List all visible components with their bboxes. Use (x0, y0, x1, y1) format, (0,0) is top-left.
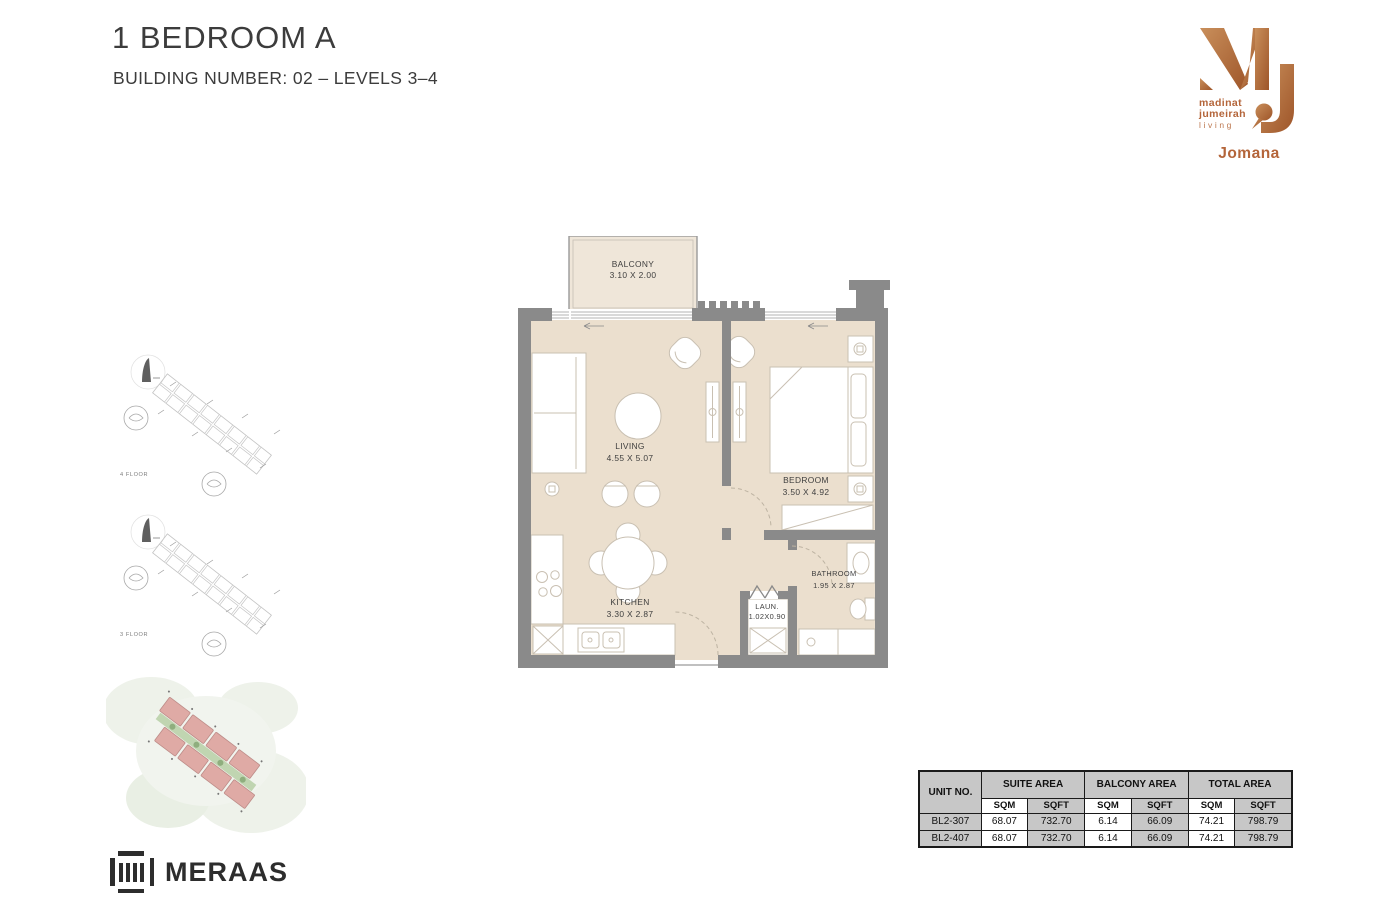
brand-line-living: living (1199, 120, 1246, 131)
table-cell: 74.21 (1188, 813, 1234, 830)
wardrobe (782, 505, 873, 530)
shower (799, 629, 875, 655)
project-name-jomana: Jomana (1197, 145, 1301, 163)
sub-header-sqft: SQFT (1028, 798, 1085, 813)
table-cell: 798.79 (1235, 830, 1292, 847)
compass-icon (124, 406, 226, 496)
sliding-door-panel (733, 382, 746, 442)
room-dims-bedroom: 3.50 X 4.92 (783, 487, 830, 497)
room-label-balcony: BALCONY (612, 259, 655, 269)
keyplan-floor-3: 3 FLOOR (112, 512, 292, 664)
table-cell: 732.70 (1028, 813, 1085, 830)
page-title: 1 BEDROOM A (112, 20, 337, 56)
floor-plan: BALCONY 3.10 X 2.00 LIVING 4.55 X 5.07 B… (518, 236, 890, 668)
meraas-wordmark: MERAAS (165, 857, 288, 888)
table-cell: 6.14 (1085, 830, 1131, 847)
unit-number-cell: BL2-307 (919, 813, 981, 830)
room-label-bedroom: BEDROOM (783, 475, 829, 485)
col-header-unit-no: UNIT NO. (919, 771, 981, 813)
compass-icon (124, 566, 226, 656)
room-dims-laundry: 1.02X0.90 (749, 612, 786, 621)
room-dims-balcony: 3.10 X 2.00 (610, 270, 657, 280)
storage-unit (533, 626, 563, 654)
keyplan-floor-4: 4 FLOOR (112, 352, 292, 504)
table-cell: 732.70 (1028, 830, 1085, 847)
room-label-living: LIVING (615, 441, 645, 451)
sub-header-sqm: SQM (1085, 798, 1131, 813)
room-dims-living: 4.55 X 5.07 (607, 453, 654, 463)
nightstand (848, 476, 873, 502)
washer-unit (750, 628, 786, 653)
table-cell: 74.21 (1188, 830, 1234, 847)
room-label-bathroom: BATHROOM (812, 569, 857, 578)
table-row: BL2-407 68.07 732.70 6.14 66.09 74.21 79… (919, 830, 1292, 847)
site-plan (106, 666, 306, 836)
table-cell: 66.09 (1131, 813, 1188, 830)
sub-header-sqm: SQM (981, 798, 1027, 813)
room-dims-kitchen: 3.30 X 2.87 (607, 609, 654, 619)
meraas-logo: MERAAS (110, 851, 288, 893)
room-dims-bathroom: 1.95 X 2.87 (813, 581, 855, 590)
sliding-door-panel (706, 382, 719, 442)
bed (770, 367, 873, 473)
nightstand (848, 336, 873, 362)
toilet (850, 598, 875, 620)
unit-number-cell: BL2-407 (919, 830, 981, 847)
page-subtitle: BUILDING NUMBER: 02 – LEVELS 3–4 (113, 68, 438, 89)
col-header-suite-area: SUITE AREA (981, 771, 1085, 798)
floor-outlet-icon (545, 482, 559, 496)
keyplan-floor-3-label: 3 FLOOR (120, 632, 148, 638)
col-header-balcony-area: BALCONY AREA (1085, 771, 1189, 798)
meraas-gate-icon (110, 851, 154, 893)
room-label-laundry: LAUN. (755, 602, 779, 611)
coffee-table (615, 393, 661, 439)
building-strip (153, 374, 272, 474)
table-cell: 68.07 (981, 830, 1027, 847)
mj-brand-logo: madinat jumeirah living Jomana (1197, 24, 1301, 169)
burj-al-arab-icon (142, 358, 151, 382)
sofa (532, 353, 586, 473)
col-header-total-area: TOTAL AREA (1188, 771, 1292, 798)
kitchen-sink (578, 628, 624, 652)
room-label-kitchen: KITCHEN (610, 597, 649, 607)
table-cell: 68.07 (981, 813, 1027, 830)
sub-header-sqm: SQM (1188, 798, 1234, 813)
table-cell: 798.79 (1235, 813, 1292, 830)
sub-header-sqft: SQFT (1235, 798, 1292, 813)
table-cell: 66.09 (1131, 830, 1188, 847)
table-row: BL2-307 68.07 732.70 6.14 66.09 74.21 79… (919, 813, 1292, 830)
area-table: UNIT NO. SUITE AREA BALCONY AREA TOTAL A… (918, 770, 1293, 848)
brand-wordmark: madinat jumeirah living (1199, 98, 1246, 131)
brand-line-jumeirah: jumeirah (1199, 109, 1246, 120)
brochure-page: 1 BEDROOM A BUILDING NUMBER: 02 – LEVELS… (0, 0, 1392, 900)
sub-header-sqft: SQFT (1131, 798, 1188, 813)
keyplan-floor-4-label: 4 FLOOR (120, 472, 148, 478)
table-cell: 6.14 (1085, 813, 1131, 830)
burj-al-arab-icon (142, 518, 151, 542)
building-strip (153, 534, 272, 634)
